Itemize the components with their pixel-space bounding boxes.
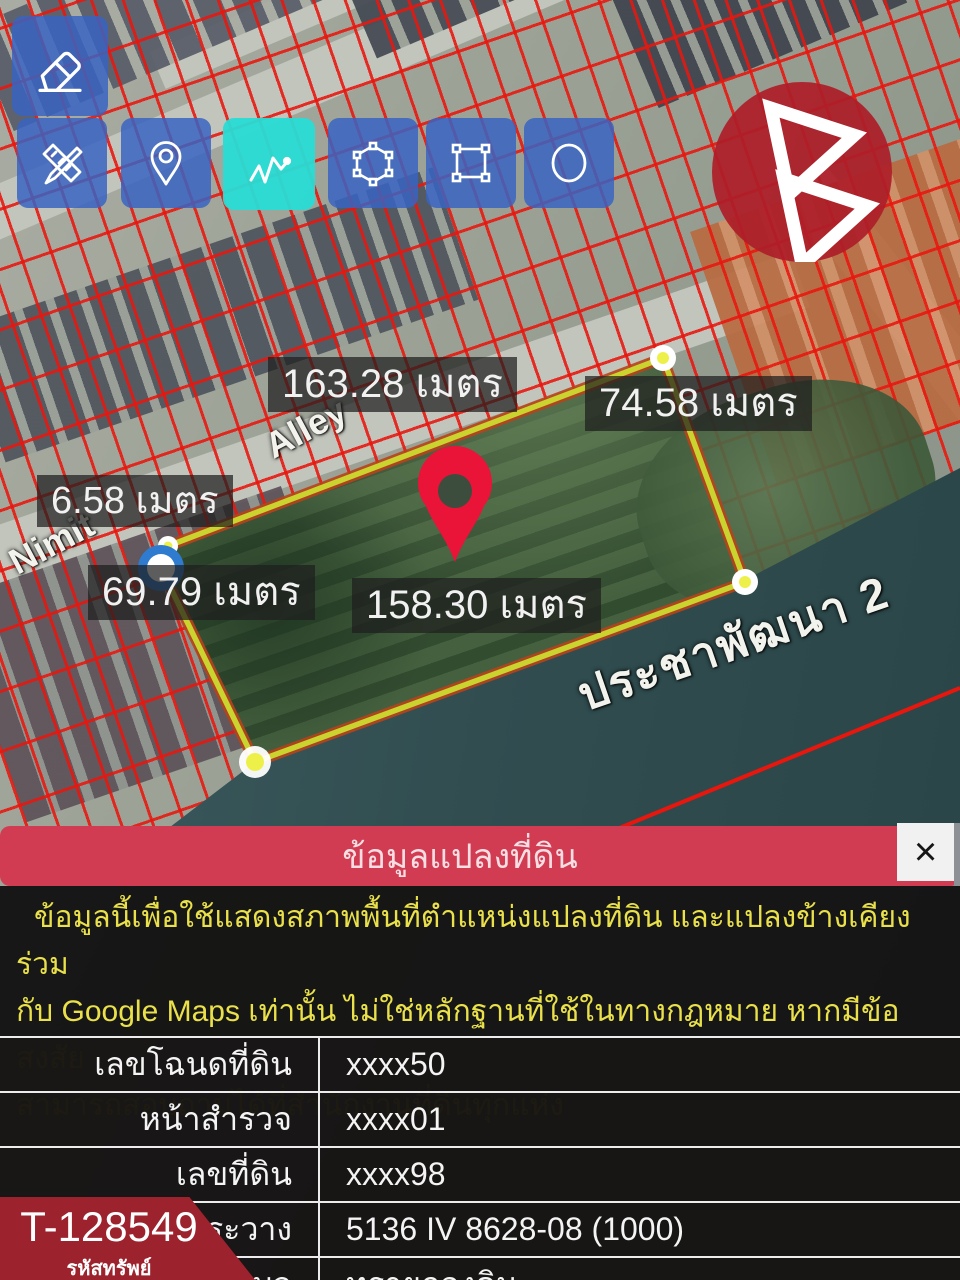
eraser-icon [29, 35, 91, 97]
table-row: เลขที่ดิน xxxx98 [0, 1146, 960, 1201]
ruler-pencil-icon [34, 135, 90, 191]
row-value: 5136 IV 8628-08 (1000) [320, 1203, 960, 1256]
measurement-label-right: 74.58 เมตร [585, 376, 812, 431]
screenshot-root: Alley Nimit ประชาพัฒนา 2 163.28 เมตร 74.… [0, 0, 960, 1280]
circle-tool-button[interactable] [524, 118, 614, 208]
row-value: xxxx50 [320, 1038, 960, 1091]
measurement-label-bottom: 158.30 เมตร [352, 578, 601, 633]
disclaimer-line-1: ข้อมูลนี้เพื่อใช้แสดงสภาพพื้นที่ตำแหน่งแ… [16, 894, 944, 988]
panel-title: ข้อมูลแปลงที่ดิน [342, 829, 578, 883]
marker-tool-button[interactable] [121, 118, 211, 208]
brand-logo-icon [712, 82, 892, 262]
measurement-label-top: 163.28 เมตร [268, 357, 517, 412]
measurement-label-left: 69.79 เมตร [88, 565, 315, 620]
property-code-caption: รหัสทรัพย์ [0, 1252, 218, 1280]
circle-icon [541, 135, 597, 191]
polyline-tool-button[interactable] [223, 118, 315, 210]
rectangle-icon [443, 135, 499, 191]
measure-tool-button[interactable] [17, 118, 107, 208]
location-pin-icon [138, 135, 194, 191]
row-value: xxxx01 [320, 1093, 960, 1146]
polygon-tool-button[interactable] [328, 118, 418, 208]
panel-header: ข้อมูลแปลงที่ดิน [0, 826, 960, 886]
polygon-icon [345, 135, 401, 191]
row-value: ทรายกองดิน [320, 1258, 960, 1280]
brand-logo [712, 82, 892, 262]
close-button[interactable]: × [897, 823, 954, 881]
measurement-label-left-short: 6.58 เมตร [37, 475, 233, 527]
eraser-tool-button[interactable] [12, 16, 108, 116]
row-label: หน้าสำรวจ [0, 1093, 320, 1146]
table-row: หน้าสำรวจ xxxx01 [0, 1091, 960, 1146]
property-code: T-128549 [0, 1203, 218, 1251]
polyline-icon [241, 136, 297, 192]
row-label: เลขโฉนดที่ดิน [0, 1038, 320, 1091]
disclaimer-text: ข้อมูลนี้เพื่อใช้แสดงสภาพพื้นที่ตำแหน่งแ… [0, 886, 960, 1036]
row-label: เลขที่ดิน [0, 1148, 320, 1201]
row-value: xxxx98 [320, 1148, 960, 1201]
panel-edge-strip [954, 823, 960, 886]
rectangle-tool-button[interactable] [426, 118, 516, 208]
table-row: เลขโฉนดที่ดิน xxxx50 [0, 1036, 960, 1091]
